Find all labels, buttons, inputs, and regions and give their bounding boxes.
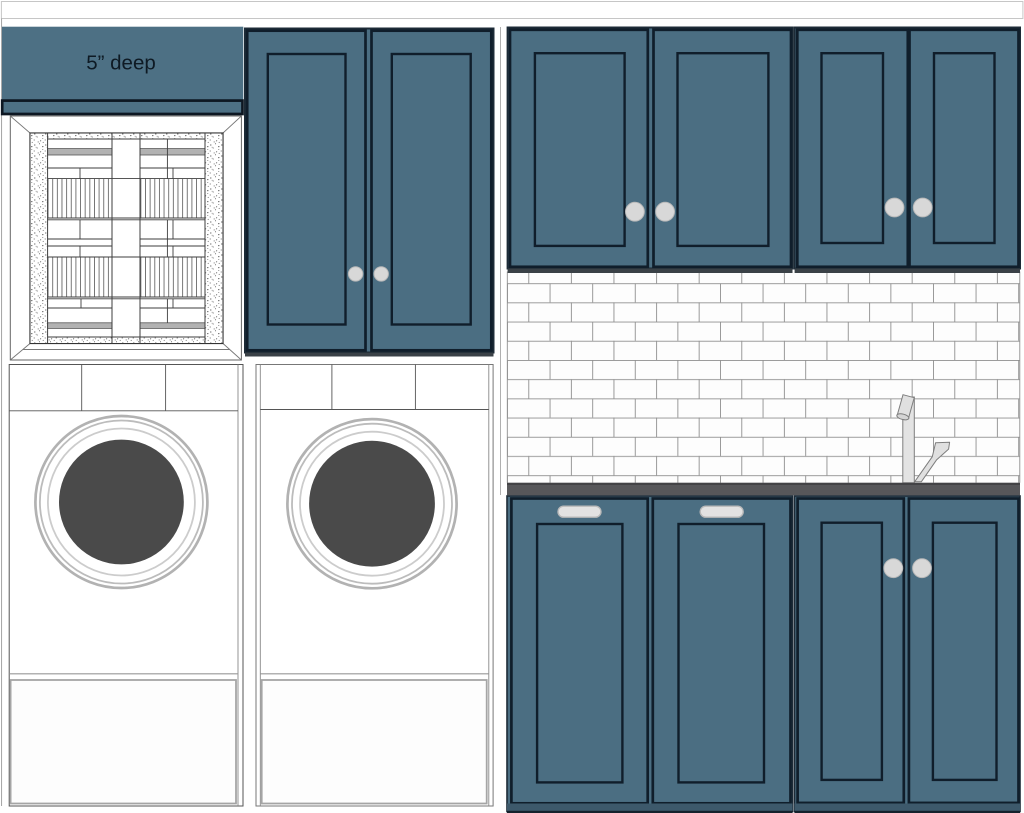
svg-text:5” deep: 5” deep <box>86 52 156 75</box>
